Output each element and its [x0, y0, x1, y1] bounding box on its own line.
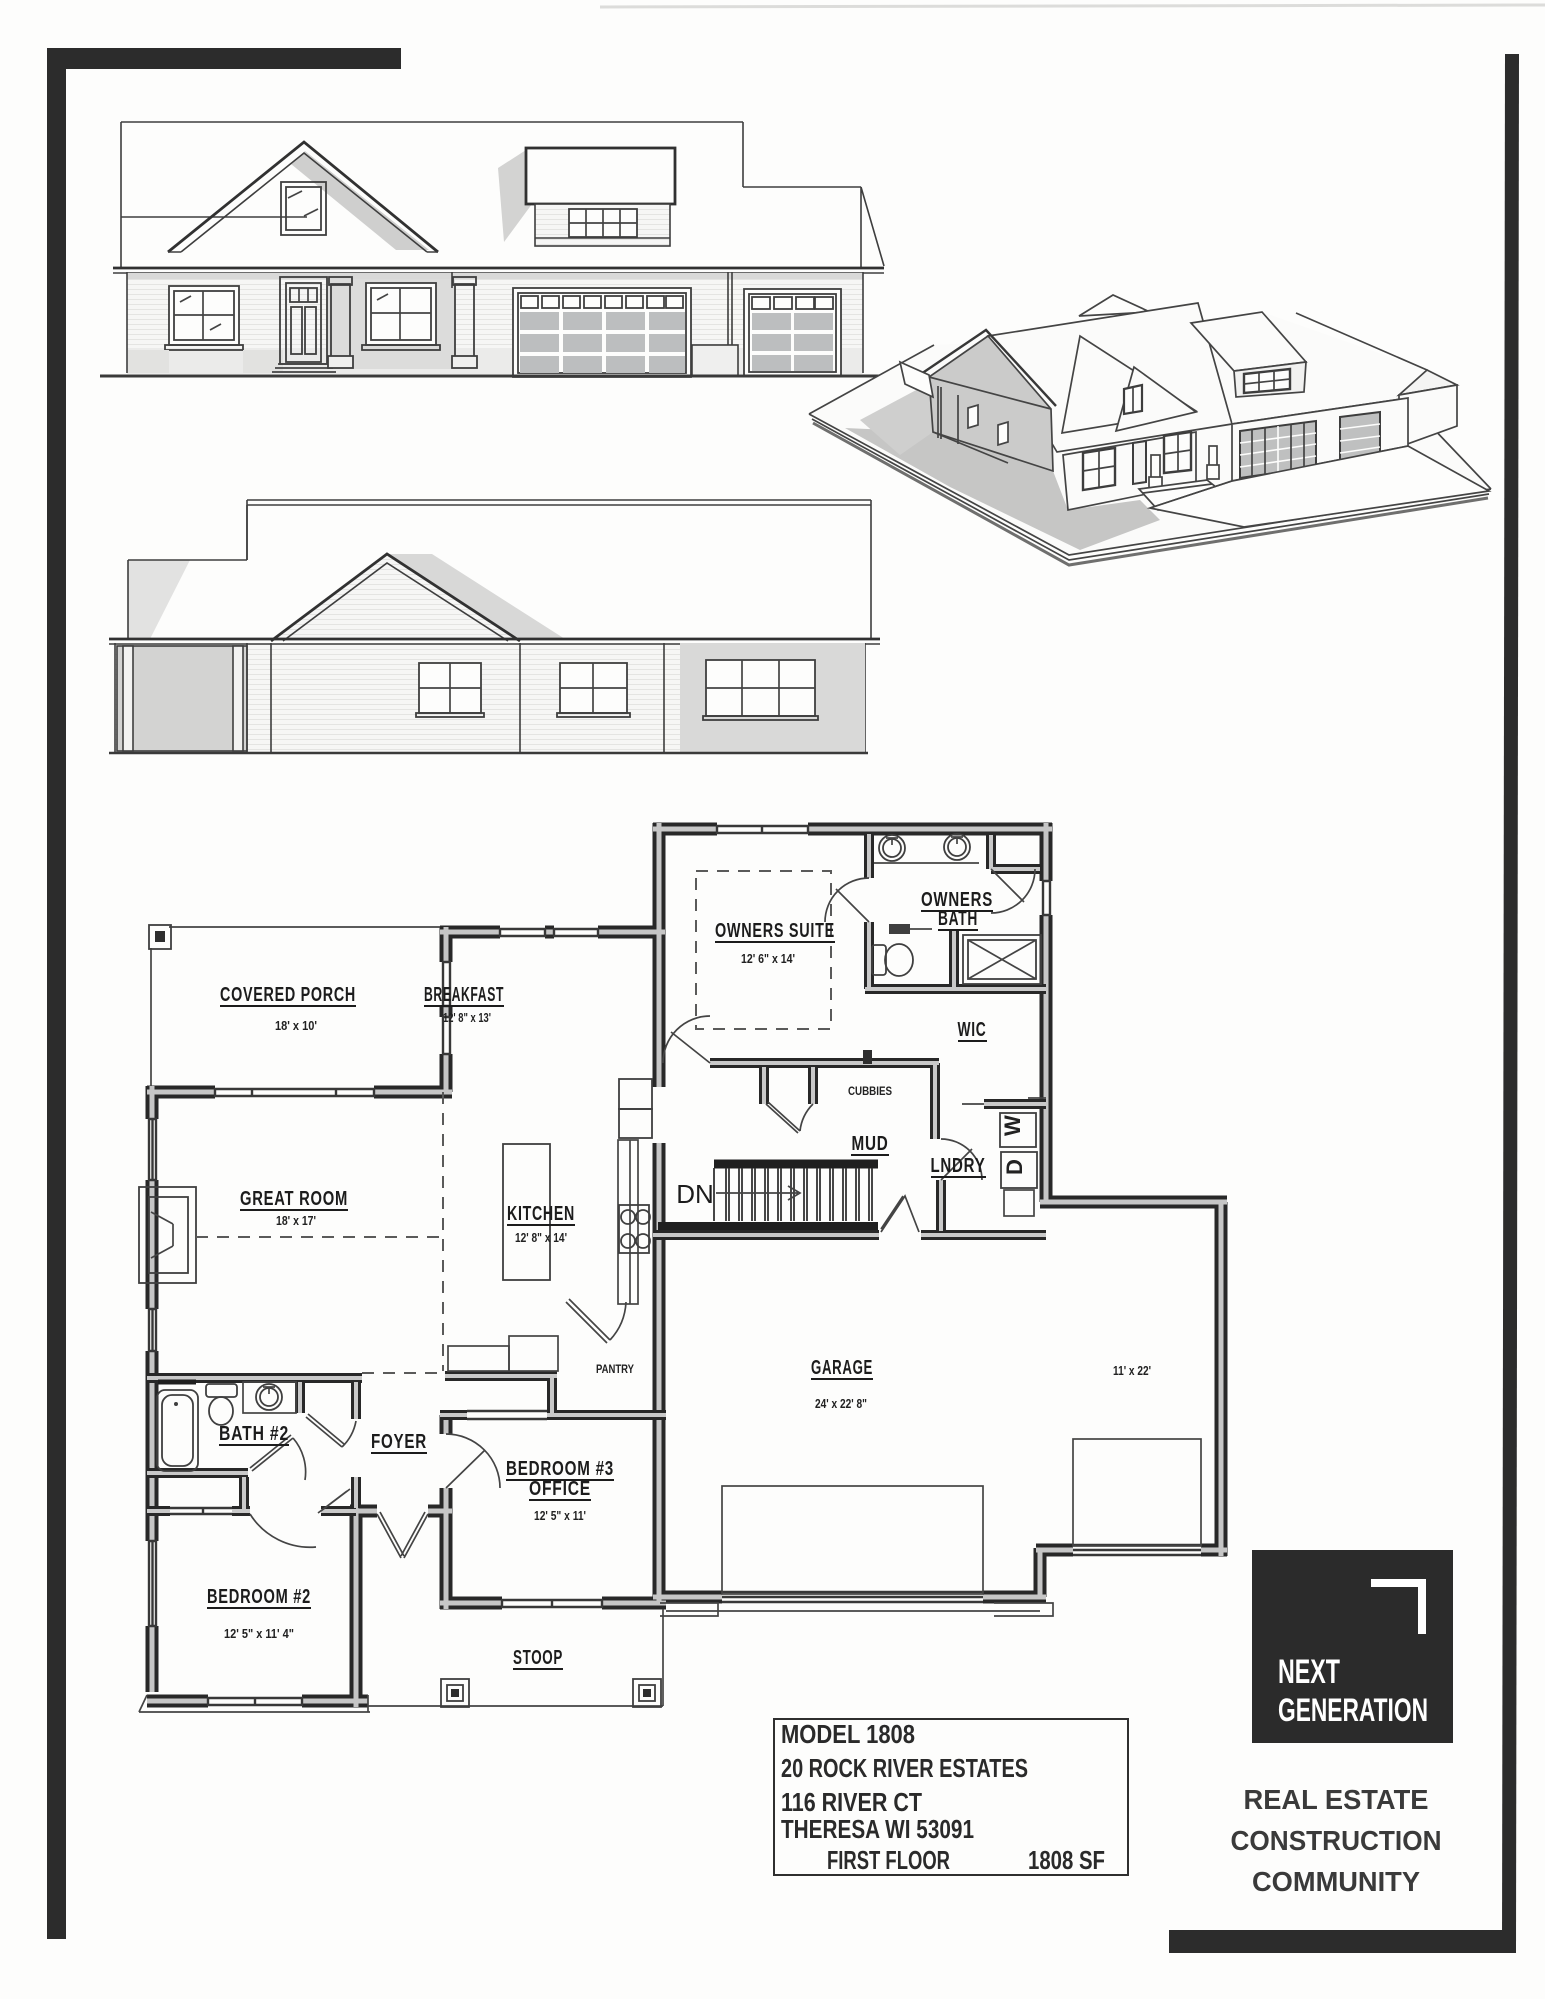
svg-text:CUBBIES: CUBBIES [848, 1084, 892, 1098]
svg-text:WIC: WIC [958, 1019, 987, 1041]
svg-text:KITCHEN: KITCHEN [507, 1203, 575, 1225]
svg-text:GARAGE: GARAGE [811, 1357, 873, 1379]
svg-text:12' 5" x 11': 12' 5" x 11' [534, 1508, 586, 1523]
svg-text:BREAKFAST: BREAKFAST [424, 984, 504, 1006]
svg-text:LNDRY: LNDRY [931, 1155, 986, 1177]
svg-text:20 ROCK RIVER ESTATES: 20 ROCK RIVER ESTATES [781, 1753, 1028, 1783]
svg-text:BATH #2: BATH #2 [219, 1423, 289, 1445]
svg-text:12' 8" x 13': 12' 8" x 13' [443, 1010, 491, 1025]
svg-text:FIRST FLOOR: FIRST FLOOR [827, 1845, 950, 1875]
svg-text:FOYER: FOYER [371, 1431, 427, 1453]
svg-text:24' x 22' 8": 24' x 22' 8" [815, 1396, 867, 1411]
svg-text:PANTRY: PANTRY [596, 1362, 634, 1376]
svg-text:DN: DN [676, 1179, 714, 1209]
svg-text:THERESA WI 53091: THERESA WI 53091 [781, 1814, 974, 1844]
svg-text:OFFICE: OFFICE [529, 1478, 591, 1500]
svg-text:11' x 22': 11' x 22' [1113, 1363, 1151, 1378]
svg-text:GREAT ROOM: GREAT ROOM [240, 1188, 348, 1210]
svg-text:COMMUNITY: COMMUNITY [1252, 1866, 1420, 1897]
svg-text:W: W [1000, 1115, 1025, 1136]
svg-text:NEXT: NEXT [1278, 1653, 1340, 1691]
svg-text:BEDROOM #2: BEDROOM #2 [207, 1586, 311, 1608]
svg-text:D: D [1002, 1159, 1027, 1175]
svg-text:REAL ESTATE: REAL ESTATE [1244, 1784, 1429, 1815]
svg-text:OWNERS SUITE: OWNERS SUITE [715, 920, 835, 942]
svg-text:COVERED PORCH: COVERED PORCH [220, 984, 356, 1006]
svg-text:BEDROOM #3: BEDROOM #3 [506, 1458, 614, 1480]
svg-text:MUD: MUD [852, 1133, 889, 1155]
svg-text:MODEL 1808: MODEL 1808 [781, 1719, 915, 1749]
svg-text:GENERATION: GENERATION [1278, 1692, 1428, 1728]
svg-text:12' 8" x 14': 12' 8" x 14' [515, 1230, 567, 1245]
svg-text:18' x 10': 18' x 10' [275, 1018, 317, 1033]
svg-text:12' 6" x 14': 12' 6" x 14' [741, 951, 795, 966]
svg-text:BATH: BATH [938, 908, 978, 930]
svg-text:12' 5" x 11' 4": 12' 5" x 11' 4" [224, 1626, 294, 1641]
svg-text:CONSTRUCTION: CONSTRUCTION [1231, 1825, 1442, 1856]
svg-text:1808 SF: 1808 SF [1028, 1845, 1105, 1875]
svg-text:116 RIVER CT: 116 RIVER CT [781, 1787, 922, 1817]
svg-text:STOOP: STOOP [513, 1647, 563, 1669]
svg-text:18' x 17': 18' x 17' [276, 1213, 316, 1228]
